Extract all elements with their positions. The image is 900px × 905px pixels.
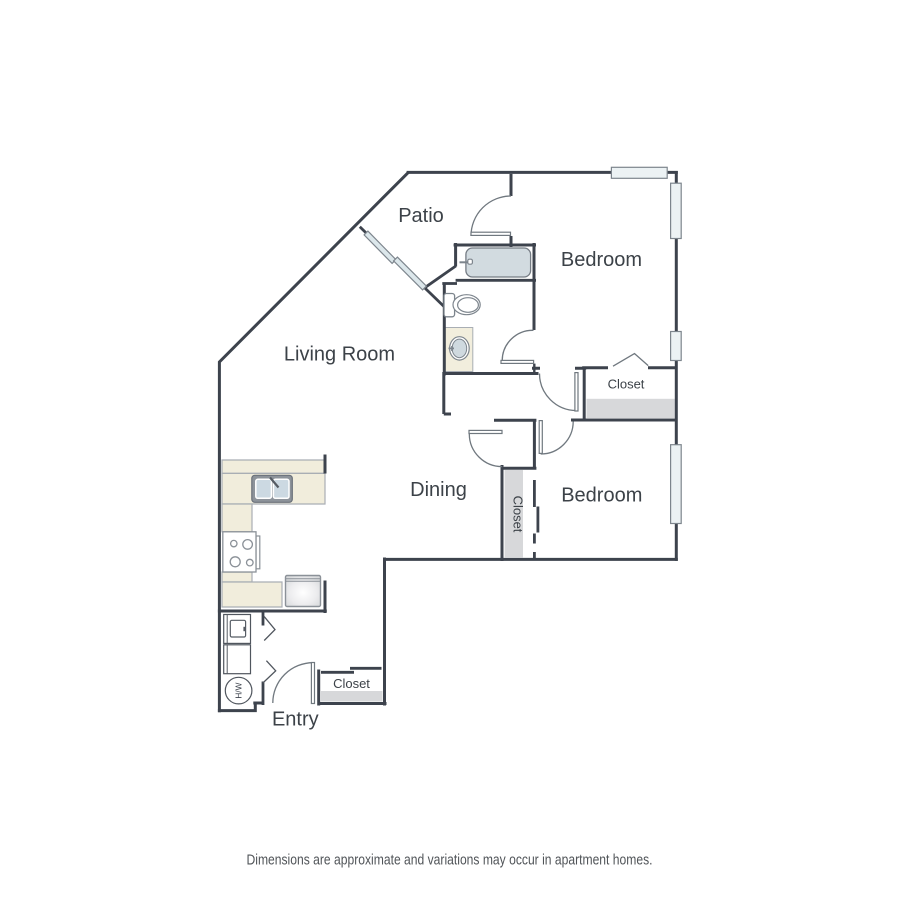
- svg-text:Closet: Closet: [608, 377, 645, 392]
- svg-text:Bedroom: Bedroom: [561, 485, 642, 507]
- svg-text:Closet: Closet: [510, 496, 525, 533]
- svg-text:Dimensions are approximate and: Dimensions are approximate and variation…: [247, 852, 653, 869]
- svg-text:Living Room: Living Room: [284, 344, 395, 366]
- svg-text:Entry: Entry: [272, 709, 319, 731]
- svg-text:Patio: Patio: [398, 205, 444, 227]
- svg-text:H/W: H/W: [234, 682, 244, 698]
- svg-text:Bedroom: Bedroom: [561, 249, 642, 271]
- svg-text:Dining: Dining: [410, 479, 467, 501]
- svg-text:Closet: Closet: [333, 676, 370, 691]
